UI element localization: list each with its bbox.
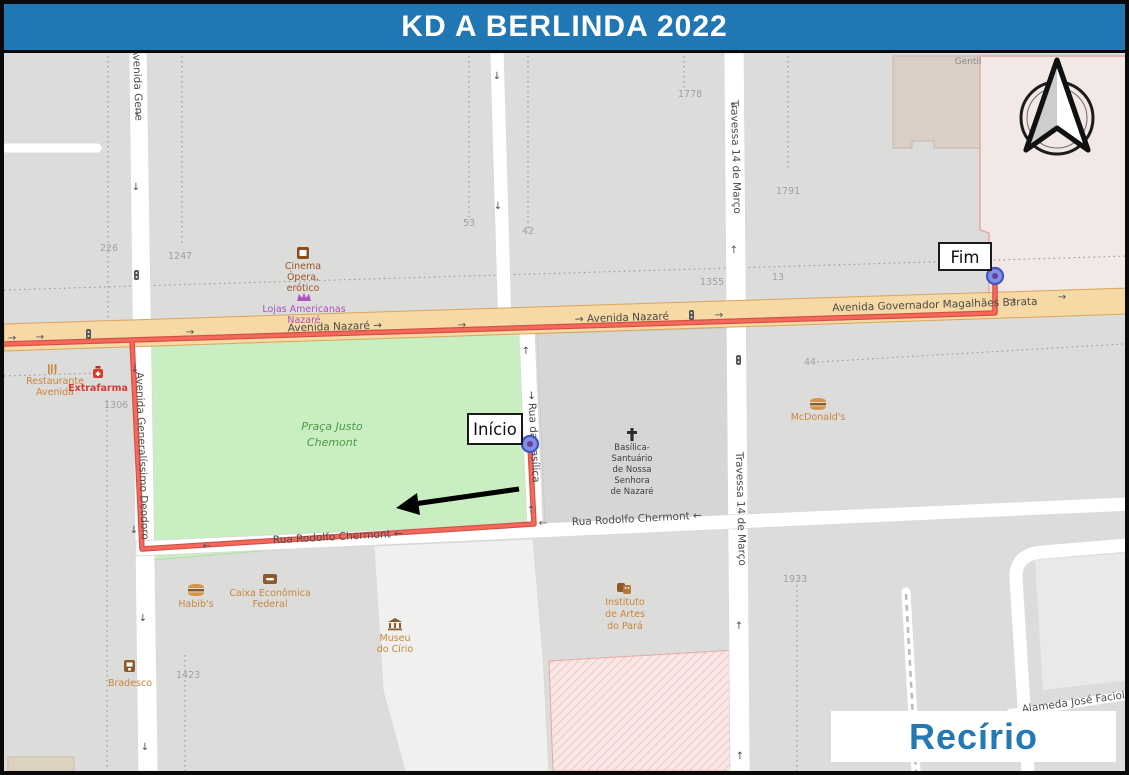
poi-label: Senhora (614, 476, 649, 486)
bank-icon (263, 574, 277, 584)
poi-label: Bradesco (108, 678, 152, 689)
oneway-arrow-icon: → (36, 332, 44, 343)
poi-label: de Nossa (613, 465, 652, 475)
poi-label: Habib's (178, 599, 213, 610)
map-canvas: Avenida Nazaré → → Avenida Nazaré Avenid… (4, 53, 1125, 771)
house-number: 1247 (168, 251, 192, 262)
end-label: Fim (951, 248, 980, 267)
poi-label: Museu (379, 633, 410, 644)
start-marker-dot (527, 441, 533, 447)
house-number: 42 (522, 226, 534, 237)
poi-label: Santuário (612, 454, 653, 464)
bank-icon (124, 660, 135, 672)
title-banner: KD A BERLINDA 2022 (4, 4, 1125, 53)
poi-label: Nazaré (287, 315, 320, 326)
poi-label: do Círio (377, 644, 414, 655)
start-label: Início (473, 420, 517, 439)
house-number: 1355 (700, 277, 724, 288)
route-poster: KD A BERLINDA 2022 (0, 0, 1129, 775)
traffic-signal-icon (86, 329, 91, 339)
poi-label: Extrafarma (68, 383, 128, 394)
oneway-arrow-icon: → (1058, 292, 1066, 303)
house-number: 53 (463, 218, 475, 229)
poi-label: Cinema (285, 261, 321, 272)
oneway-arrow-icon: ↓ (132, 182, 140, 193)
burger-icon (810, 398, 826, 410)
poi-label: McDonald's (791, 412, 846, 423)
oneway-arrow-icon: → (715, 310, 723, 321)
burger-icon (188, 584, 204, 596)
event-label-box: Recírio (831, 711, 1116, 762)
school-building (893, 56, 984, 148)
end-marker-dot (992, 273, 998, 279)
oneway-arrow-icon: ← (539, 518, 547, 529)
poi-label: de Artes (605, 609, 645, 620)
oneway-arrow-icon: → (1008, 295, 1016, 306)
corner-block (1035, 553, 1125, 690)
cinema-icon (297, 247, 309, 259)
oneway-arrow-icon: ↓ (493, 71, 501, 82)
oneway-arrow-icon: ↓ (141, 742, 149, 753)
oneway-arrow-icon: ↑ (729, 102, 737, 113)
construction-area (549, 650, 740, 771)
house-number: 1423 (176, 670, 200, 681)
park-label-line2: Chemont (307, 436, 358, 449)
traffic-signal-icon (736, 355, 741, 365)
event-label: Recírio (909, 716, 1038, 758)
house-number: 1778 (678, 89, 702, 100)
restaurant-icon (48, 364, 57, 374)
oneway-arrow-icon: → (186, 327, 194, 338)
house-number: 226 (100, 243, 118, 254)
house-number: 44 (804, 357, 816, 368)
small-building (8, 757, 74, 771)
oneway-arrow-icon: ← (203, 541, 211, 552)
poi-label: Lojas Americanas (262, 304, 345, 315)
house-number: 13 (772, 272, 784, 283)
house-number: 1933 (783, 574, 807, 585)
traffic-signal-icon (689, 310, 694, 320)
museum-block (374, 539, 549, 771)
oneway-arrow-icon: ↓ (139, 613, 147, 624)
poi-label: de Nazaré (610, 486, 653, 497)
poi-label: Caixa Econômica (229, 588, 310, 599)
oneway-arrow-icon: ↓ (131, 364, 139, 375)
poi-label: do Pará (607, 621, 643, 632)
oneway-arrow-icon: → (458, 320, 466, 331)
oneway-arrow-icon: ↑ (522, 346, 530, 357)
poi-label: Basílica- (614, 443, 650, 453)
oneway-arrow-icon: ↓ (133, 107, 141, 118)
poi-label: Ópera, (287, 271, 319, 283)
building-label-partial: Gentil (955, 57, 982, 67)
oneway-arrow-icon: ↓ (494, 201, 502, 212)
oneway-arrow-icon: ↑ (527, 505, 535, 516)
house-number: 1306 (104, 400, 128, 411)
crown-icon (297, 293, 311, 301)
poi-label: erótico (287, 283, 320, 294)
poi-label: Federal (252, 599, 287, 610)
oneway-arrow-icon: ↑ (735, 621, 743, 632)
oneway-arrow-icon: ↓ (130, 525, 138, 536)
oneway-arrow-icon: ↑ (736, 751, 744, 762)
park-label-line1: Praça Justo (301, 420, 362, 433)
page-title: KD A BERLINDA 2022 (401, 10, 727, 44)
house-number: 1791 (776, 186, 800, 197)
poi-label: Instituto (605, 597, 645, 608)
oneway-arrow-icon: ↑ (730, 245, 738, 256)
street-stub (4, 143, 102, 153)
oneway-arrow-icon: → (8, 333, 16, 344)
traffic-signal-icon (134, 270, 139, 280)
